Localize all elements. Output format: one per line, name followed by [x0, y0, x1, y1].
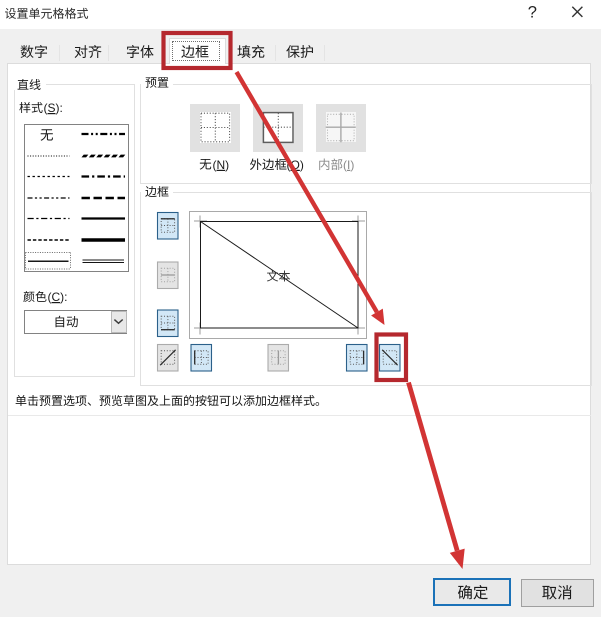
svg-text:(I): (I): [343, 158, 354, 172]
svg-text:(N): (N): [213, 158, 230, 172]
svg-text:(C):: (C):: [48, 290, 68, 304]
svg-text:(S):: (S):: [44, 101, 63, 115]
svg-text:?: ?: [528, 3, 537, 21]
